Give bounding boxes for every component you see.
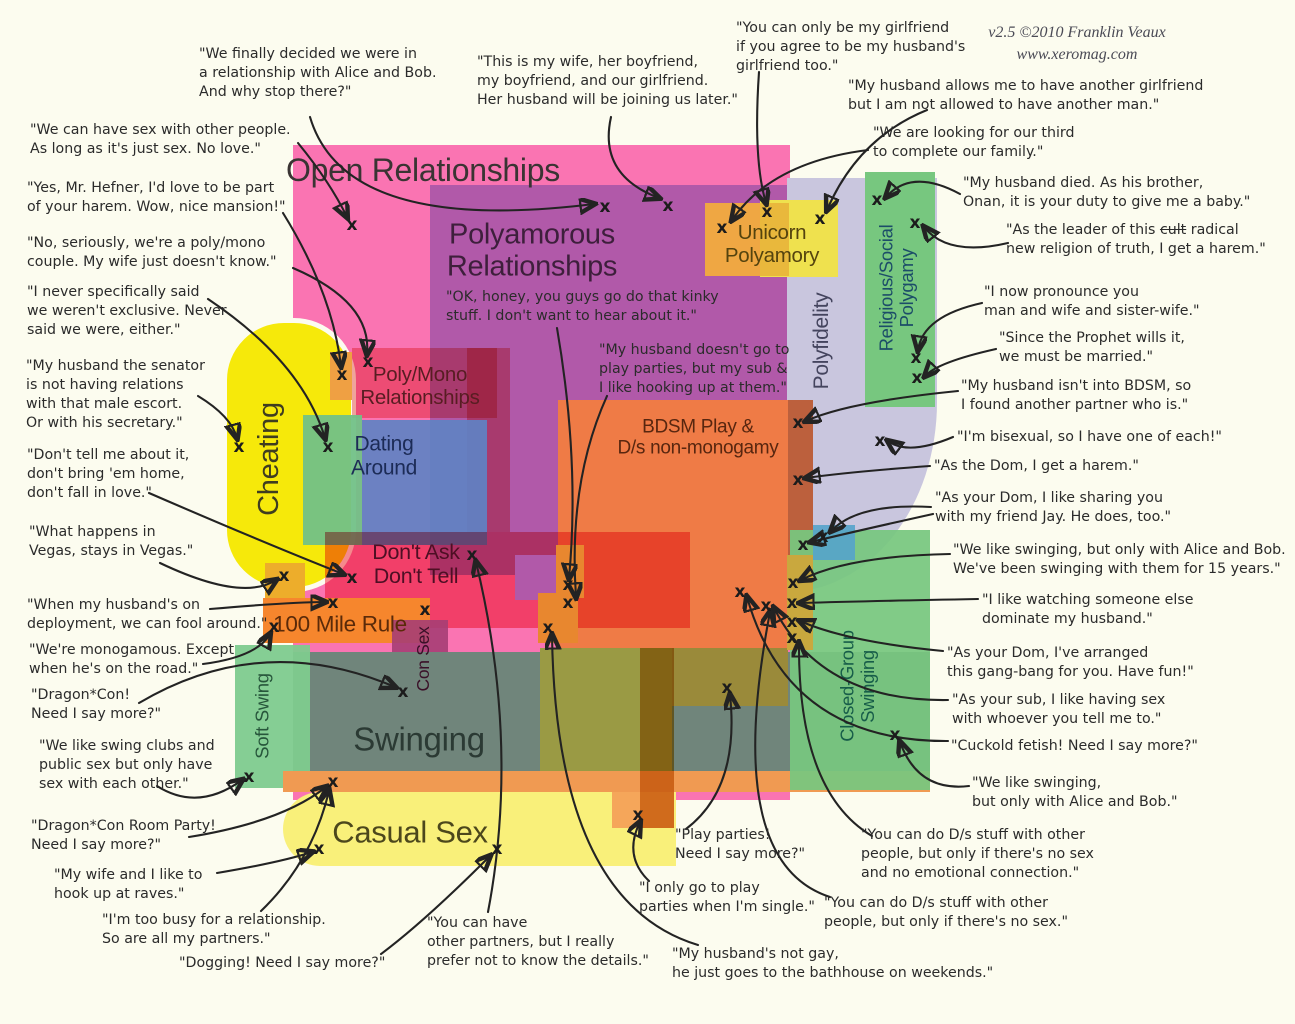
copyright-credit: v2.5 ©2010 Franklin Veaux www.xeromag.co… [988,22,1165,65]
quote-sub-hookup: "My husband doesn't go to play parties, … [599,341,789,398]
quote-wife-boyfriend: "This is my wife, her boyfriend, my boyf… [477,53,738,110]
non-monogamy-map: Open RelationshipsPolyamorous Relationsh… [0,0,1295,1024]
quote-too-busy: "I'm too busy for a relationship. So are… [102,911,326,949]
quote-not-into-bdsm: "My husband isn't into BDSM, so I found … [961,377,1191,415]
quote-just-sex: "We can have sex with other people. As l… [30,121,291,159]
quote-dragon-room: "Dragon*Con Room Party! Need I say more?… [31,817,216,855]
quote-struck-text: cult [1160,222,1186,238]
quote-sub-sex: "As your sub, I like having sex with who… [952,691,1165,729]
quote-watching: "I like watching someone else dominate m… [982,591,1193,629]
quote-dogging: "Dogging! Need I say more?" [179,954,385,973]
quote-ds-no-sex-emotional: "You can do D/s stuff with other people,… [861,826,1094,883]
quote-gang-bang: "As your Dom, I've arranged this gang-ba… [947,644,1194,682]
quote-cuckold: "Cuckold fetish! Need I say more?" [951,737,1198,756]
quote-deployment: "When my husband's on deployment, we can… [27,596,267,634]
credit-version: v2.5 ©2010 Franklin Veaux [988,24,1165,41]
quote-alice-bob-swing: "We like swinging, but only with Alice a… [972,774,1177,812]
quote-another-girlfriend: "My husband allows me to have another gi… [848,77,1203,115]
quote-ok-honey: "OK, honey, you guys go do that kinky st… [446,288,719,326]
quote-play-parties: "Play parties! Need I say more?" [675,826,805,864]
quote-cult-leader: "As the leader of this cult radical new … [1006,221,1266,259]
quote-hefner: "Yes, Mr. Hefner, I'd love to be part of… [27,179,286,217]
quote-bisexual: "I'm bisexual, so I have one of each!" [957,428,1222,447]
credit-url: www.xeromag.com [1017,46,1138,63]
quote-senator: "My husband the senator is not having re… [26,357,205,433]
quote-vegas: "What happens in Vegas, stays in Vegas." [29,523,193,561]
quote-dont-tell: "Don't tell me about it, don't bring 'em… [27,446,189,503]
quote-monogamous-road: "We're monogamous. Except when he's on t… [29,641,234,679]
quote-prophet: "Since the Prophet wills it, we must be … [999,329,1185,367]
quote-text: "As the leader of this [1006,222,1160,238]
quote-fifteen-years: "We like swinging, but only with Alice a… [953,541,1286,579]
quote-swing-clubs: "We like swing clubs and public sex but … [39,737,215,794]
quote-raves: "My wife and I like to hook up at raves.… [54,866,202,904]
quote-poly-mono-couple: "No, seriously, we're a poly/mono couple… [27,234,277,272]
quote-alice-bob: "We finally decided we were in a relatio… [199,45,436,102]
quote-friend-jay: "As your Dom, I like sharing you with my… [935,489,1171,527]
quote-ds-no-sex: "You can do D/s stuff with other people,… [824,894,1068,932]
quote-husband-died: "My husband died. As his brother, Onan, … [963,174,1250,212]
quote-other-partners: "You can have other partners, but I real… [427,914,649,971]
quote-girlfriend-too: "You can only be my girlfriend if you ag… [736,19,965,76]
quotes-layer: "We finally decided we were in a relatio… [0,0,1295,1024]
quote-never-said: "I never specifically said we weren't ex… [27,283,227,340]
quote-not-gay: "My husband's not gay, he just goes to t… [672,945,993,983]
quote-pronounce: "I now pronounce you man and wife and si… [984,283,1200,321]
quote-dom-harem: "As the Dom, I get a harem." [934,457,1139,476]
quote-our-third: "We are looking for our third to complet… [873,124,1075,162]
quote-dragon-con: "Dragon*Con! Need I say more?" [31,686,161,724]
quote-single-parties: "I only go to play parties when I'm sing… [639,879,815,917]
